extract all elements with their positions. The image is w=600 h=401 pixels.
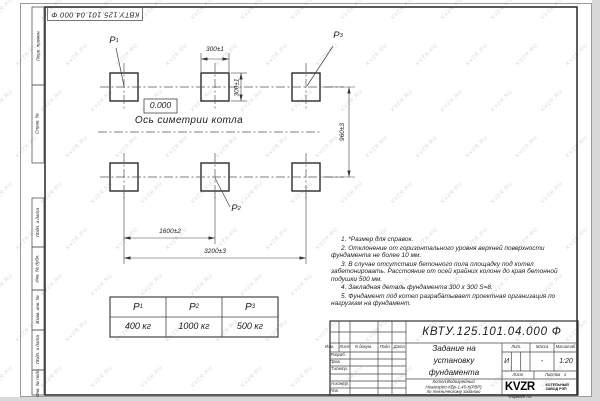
designation-rotated: КВТУ.125.101.04.000 Ф [47, 7, 143, 21]
title-block-doc-title: Задание на установку фундамента [406, 343, 502, 379]
load-table-header-p3: P3 [222, 297, 278, 317]
note-3: 3. В случае отсутствия бетонного пола пл… [331, 261, 577, 284]
margin-label-podp-data-1: Подп. и дата [32, 198, 44, 247]
margin-label-sprav-no: Справ. № [32, 85, 44, 163]
margin-label-inv-dubl: Инв. № дубл. [32, 247, 44, 290]
load-table-header-p2: P2 [166, 297, 222, 317]
margin-label-vzam-inv: Взам. инв. № [32, 290, 44, 330]
centerlines [98, 63, 344, 201]
note-4: 4. Закладная деталь фундамента 300 x 300… [331, 284, 577, 292]
role-label-tkontr: Т.контр. [327, 364, 356, 375]
kvzr-logo-text: KVZR [505, 381, 535, 394]
load-table-value-p3: 500 кг [222, 317, 278, 337]
dim-column-spacing: 1600±2 [145, 227, 195, 236]
sheets-value: 1 [564, 372, 566, 377]
dim-pad-width: 300±1 [197, 45, 233, 54]
drawing-sheet: { "watermark": {"text": "KVZR.RU"}, "fra… [0, 0, 600, 400]
position-label-p3: P3 [326, 30, 350, 42]
note-1: 1. *Размер для справок. [331, 236, 577, 244]
position-label-p1: P1 [102, 35, 126, 47]
margin-label-perv-primen: Перв. примен. [32, 7, 44, 85]
dim-pad-height: 300±1 [233, 72, 242, 102]
company-name: КОТЕЛЬНЫЙ ЗАВОД РЭП [545, 383, 568, 391]
elevation-mark: 0.000 [144, 99, 177, 113]
note-5: 5. Фундамент под котел разрабатывает про… [331, 293, 577, 308]
title-block-designation: КВТУ.125.101.04.000 Ф [406, 321, 578, 343]
margin-label-podp-data-2: Подп. и дата [32, 330, 44, 370]
symmetry-axis-label: Ось симетрии котла [129, 114, 249, 126]
dim-total-length: 3200±3 [190, 247, 240, 256]
load-table-value-p2: 1000 кг [166, 317, 222, 337]
notes-block: 1. *Размер для справок. 2. Отклонение от… [331, 236, 577, 320]
role-label-utv: Утв. [327, 386, 356, 397]
leader-lines [116, 46, 333, 207]
load-table-header-p1: P1 [110, 297, 166, 317]
margin-label-inv-podl: Инв. № подл. [32, 370, 44, 395]
dim-row-spacing: 960±3 [338, 112, 348, 152]
note-2: 2. Отклонение от горизонтального уровня … [331, 245, 577, 260]
load-table-value-p1: 400 кг [110, 317, 166, 337]
position-label-p2: P2 [224, 203, 248, 215]
format-label: Формат А3 [490, 394, 550, 401]
